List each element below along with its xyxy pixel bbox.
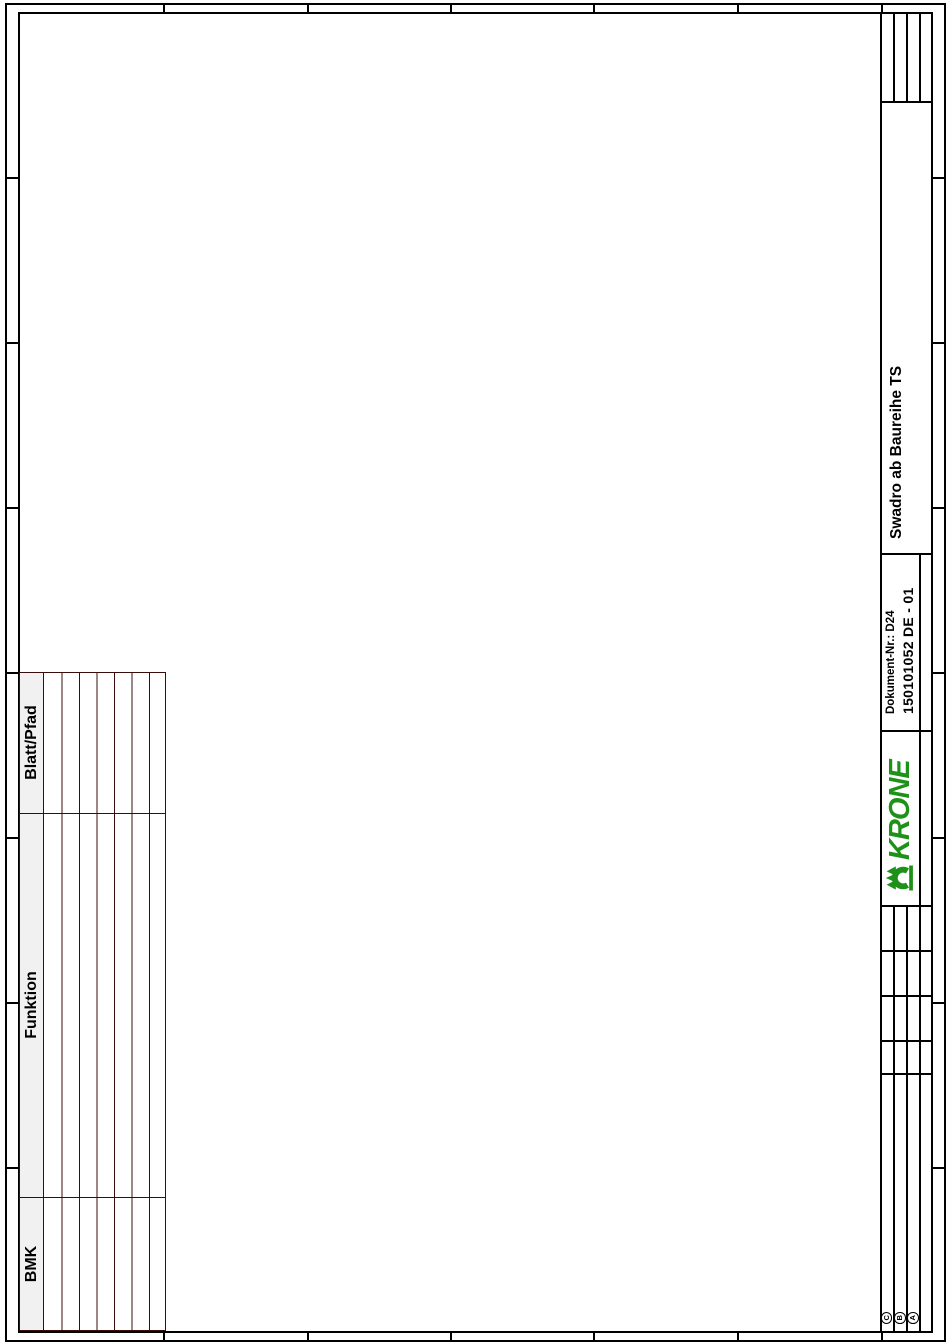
revision-letter: B	[896, 1315, 904, 1320]
document-number-value: 150101052 DE - 01	[899, 556, 918, 714]
zone-tick-right	[933, 1002, 944, 1004]
zone-tick-top	[593, 3, 595, 12]
revision-grid-line	[906, 905, 908, 1331]
schematic-sheet: Blatt/Pfad Funktion BMK Swadro ab Baurei…	[0, 0, 950, 1344]
title-block-left-border	[880, 13, 882, 1331]
document-number-block: Dokument-Nr.: D24 150101052 DE - 01	[883, 556, 919, 726]
zone-tick-top	[737, 3, 739, 12]
zone-tick-left	[7, 1167, 18, 1169]
zone-tick-right	[933, 1167, 944, 1169]
revision-letter: C	[882, 1315, 890, 1320]
zone-tick-left	[7, 342, 18, 344]
column-header-blatt-pfad: Blatt/Pfad	[20, 672, 44, 813]
zone-tick-bottom	[593, 1332, 595, 1341]
zone-tick-bottom	[163, 1332, 165, 1341]
product-title: Swadro ab Baureihe TS	[884, 105, 910, 549]
title-block-divider	[880, 101, 932, 103]
title-block-grid-line	[919, 553, 921, 905]
zone-tick-right	[933, 507, 944, 509]
column-header-bmk: BMK	[20, 1197, 44, 1331]
revision-grid-line	[893, 905, 895, 1331]
zone-tick-top	[307, 3, 309, 12]
brand-logo-text: KRONE	[886, 760, 915, 860]
zone-tick-top	[163, 3, 165, 12]
column-header-funktion: Funktion	[20, 813, 44, 1197]
zone-tick-bottom	[881, 1332, 883, 1341]
revision-mark-c: C	[881, 1312, 893, 1324]
revision-grid-divider	[880, 950, 932, 952]
zone-tick-top	[881, 3, 883, 12]
zone-tick-right	[933, 177, 944, 179]
zone-tick-left	[7, 177, 18, 179]
title-block-grid-line	[893, 13, 895, 101]
zone-tick-left	[7, 837, 18, 839]
title-block-divider	[880, 730, 932, 732]
revision-mark-a: A	[907, 1312, 919, 1324]
drawing-canvas	[20, 14, 880, 669]
zone-tick-right	[933, 672, 944, 674]
revision-grid-line	[919, 905, 921, 1331]
zone-tick-bottom	[737, 1332, 739, 1341]
brand-logo: KRONE	[881, 733, 919, 901]
zone-tick-left	[7, 1002, 18, 1004]
revision-grid-divider	[880, 1040, 932, 1042]
zone-tick-left	[7, 672, 18, 674]
title-block-grid-line	[919, 13, 921, 101]
revision-grid-divider	[880, 1073, 932, 1075]
revision-grid-divider	[880, 995, 932, 997]
reference-table-row-grid	[45, 673, 165, 1330]
title-block-grid-line	[906, 13, 908, 101]
title-block-divider	[880, 553, 932, 555]
zone-tick-left	[7, 507, 18, 509]
zone-tick-bottom	[307, 1332, 309, 1341]
zone-tick-bottom	[450, 1332, 452, 1341]
document-number-label: Dokument-Nr.: D24	[883, 556, 899, 714]
revision-mark-b: B	[894, 1312, 906, 1324]
zone-tick-right	[933, 342, 944, 344]
zone-tick-top	[450, 3, 452, 12]
revision-letter: A	[909, 1315, 917, 1320]
krone-crown-icon	[885, 863, 915, 893]
zone-tick-right	[933, 837, 944, 839]
